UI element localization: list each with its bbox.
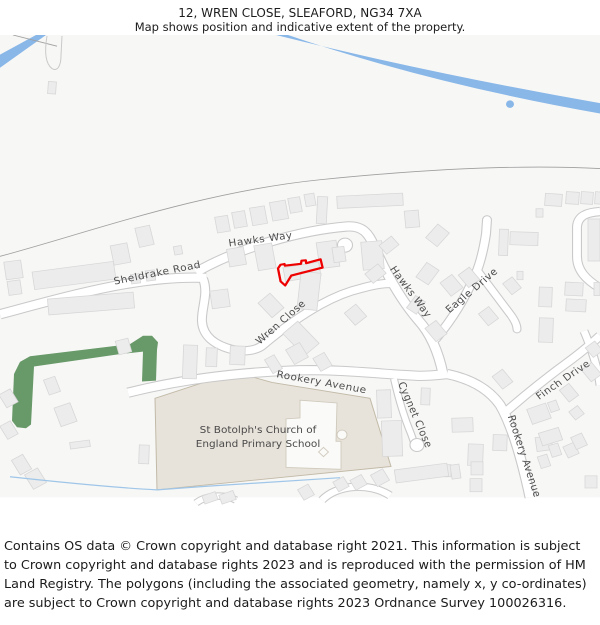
building [4,260,23,280]
building [595,192,600,205]
page-subtitle: Map shows position and indicative extent… [0,20,600,34]
building [215,215,231,233]
building [381,420,402,456]
building [232,211,248,229]
building [269,200,288,221]
building [588,219,600,261]
building [7,280,22,296]
building [226,247,246,267]
building [499,229,509,255]
building [585,476,597,488]
building [536,209,543,217]
building [48,81,57,94]
building [182,345,197,379]
building [539,318,554,343]
page: 12, WREN CLOSE, SLEAFORD, NG34 7XA Map s… [0,0,600,625]
building [249,206,267,226]
map: Hawks Way Sheldrake Road Wren Close Hawk… [0,35,600,530]
building [316,196,328,224]
building [566,299,587,312]
school-circle-feature [337,430,347,439]
building [139,445,150,464]
building [581,192,594,205]
building [510,232,538,246]
building [539,287,553,307]
building [471,462,483,475]
building [376,390,391,418]
header: 12, WREN CLOSE, SLEAFORD, NG34 7XA Map s… [0,0,600,35]
building [421,388,431,405]
building [452,418,474,433]
building [304,193,316,207]
building [493,435,508,451]
school-label-line1: St Botolph's Church of [200,425,317,436]
building [230,346,246,365]
building [470,479,482,492]
footer: Contains OS data © Crown copyright and d… [0,530,600,613]
building [404,210,420,228]
page-title: 12, WREN CLOSE, SLEAFORD, NG34 7XA [0,6,600,20]
building [565,282,584,296]
building [110,243,131,265]
attribution-text: Contains OS data © Crown copyright and d… [4,537,594,613]
building [332,246,346,262]
school-label-line2: England Primary School [196,439,321,450]
building [517,271,523,279]
building [450,464,461,479]
building [545,193,563,206]
building [566,191,580,204]
building [288,197,303,214]
building [210,289,230,309]
river-bump [506,100,514,107]
building [173,245,182,255]
building [594,283,600,296]
building [206,348,218,367]
